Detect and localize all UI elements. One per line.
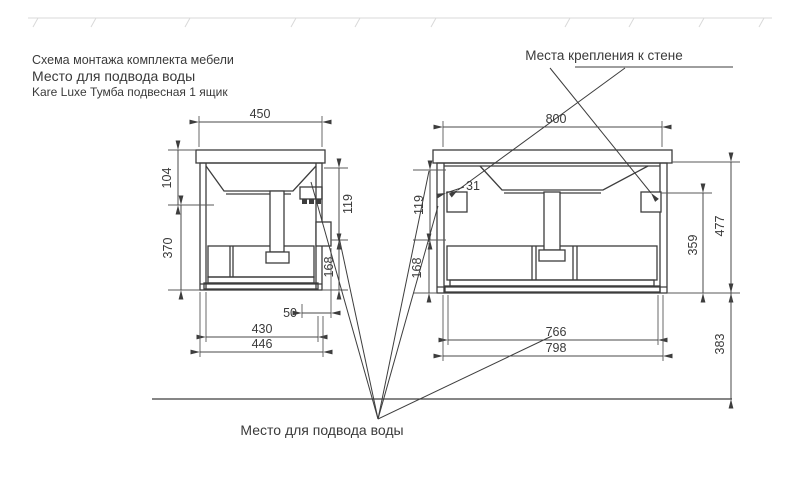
front-mount-bracket-right bbox=[641, 192, 661, 212]
side-drawer bbox=[208, 246, 314, 277]
dim-119-side-label: 119 bbox=[341, 194, 355, 214]
dim-370-label: 370 bbox=[161, 238, 175, 259]
front-basin bbox=[480, 166, 648, 190]
technical-drawing-canvas: Схема монтажа комплекта мебели Место для… bbox=[0, 0, 800, 500]
dim-477-label: 477 bbox=[713, 216, 727, 237]
front-countertop bbox=[433, 150, 672, 163]
front-view-drawing bbox=[433, 150, 672, 293]
dim-31-label: 31 bbox=[466, 179, 480, 193]
wall-mount-callout: Места крепления к стене bbox=[458, 48, 733, 193]
water-supply-callout: Место для подвода воды bbox=[240, 171, 552, 438]
front-view-dimensions: 800 31 119 168 359 477 383 766 798 bbox=[410, 112, 740, 399]
title-line-1: Схема монтажа комплекта мебели bbox=[32, 53, 234, 67]
side-mount-bracket bbox=[300, 187, 322, 199]
dim-446-label: 446 bbox=[252, 337, 273, 351]
dim-383-label: 383 bbox=[713, 334, 727, 355]
dim-50-label: 50 bbox=[283, 306, 297, 320]
water-supply-label: Место для подвода воды bbox=[240, 422, 403, 438]
front-mount-bracket-left bbox=[447, 192, 467, 212]
dim-104-label: 104 bbox=[160, 168, 174, 189]
side-countertop bbox=[196, 150, 325, 163]
front-drain-pipe bbox=[544, 192, 560, 250]
title-line-2: Место для подвода воды bbox=[32, 68, 195, 84]
side-view-drawing bbox=[196, 150, 331, 290]
dim-168-front-label: 168 bbox=[410, 258, 424, 279]
title-line-3: Kare Luxe Тумба подвесная 1 ящик bbox=[32, 85, 228, 99]
mounting-scheme-drawing: Схема монтажа комплекта мебели Место для… bbox=[0, 0, 800, 500]
wall-hatch-line bbox=[28, 18, 772, 27]
title-block: Схема монтажа комплекта мебели Место для… bbox=[32, 53, 234, 99]
wall-mount-label: Места крепления к стене bbox=[525, 48, 683, 63]
dim-450-label: 450 bbox=[250, 107, 271, 121]
side-drain-pipe bbox=[270, 191, 284, 252]
dim-359-label: 359 bbox=[686, 235, 700, 256]
dim-798-label: 798 bbox=[546, 341, 567, 355]
dim-766-label: 766 bbox=[546, 325, 567, 339]
dim-430-label: 430 bbox=[252, 322, 273, 336]
dim-168-side-label: 168 bbox=[322, 257, 336, 278]
